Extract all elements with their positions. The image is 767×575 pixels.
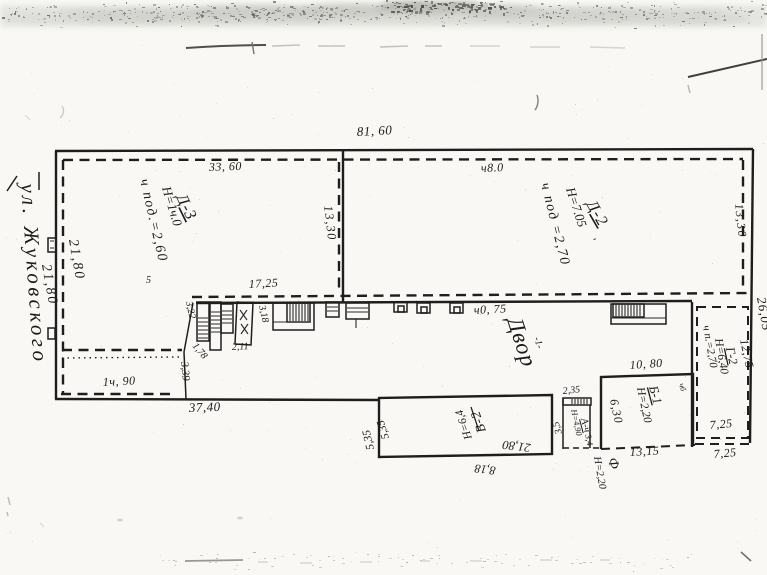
svg-text:5: 5: [146, 275, 151, 286]
svg-text:37,40: 37,40: [188, 399, 221, 415]
svg-text:8,18: 8,18: [474, 461, 497, 477]
svg-text:ч8.0: ч8.0: [481, 160, 504, 175]
svg-text:13,15: 13,15: [629, 443, 659, 459]
svg-text:7,25: 7,25: [709, 416, 733, 432]
svg-text:7,25: 7,25: [713, 445, 737, 461]
svg-text:33, 60: 33, 60: [208, 159, 242, 174]
svg-text:81, 60: 81, 60: [356, 122, 392, 139]
svg-text:2,11: 2,11: [232, 341, 249, 353]
svg-text:ч0, 75: ч0, 75: [473, 301, 506, 317]
svg-text:10, 80: 10, 80: [629, 356, 663, 372]
svg-text:2,35: 2,35: [562, 384, 581, 397]
svg-text:17,25: 17,25: [248, 275, 278, 291]
svg-text:3,39: 3,39: [178, 360, 192, 382]
svg-text:1ч, 90: 1ч, 90: [102, 373, 135, 389]
